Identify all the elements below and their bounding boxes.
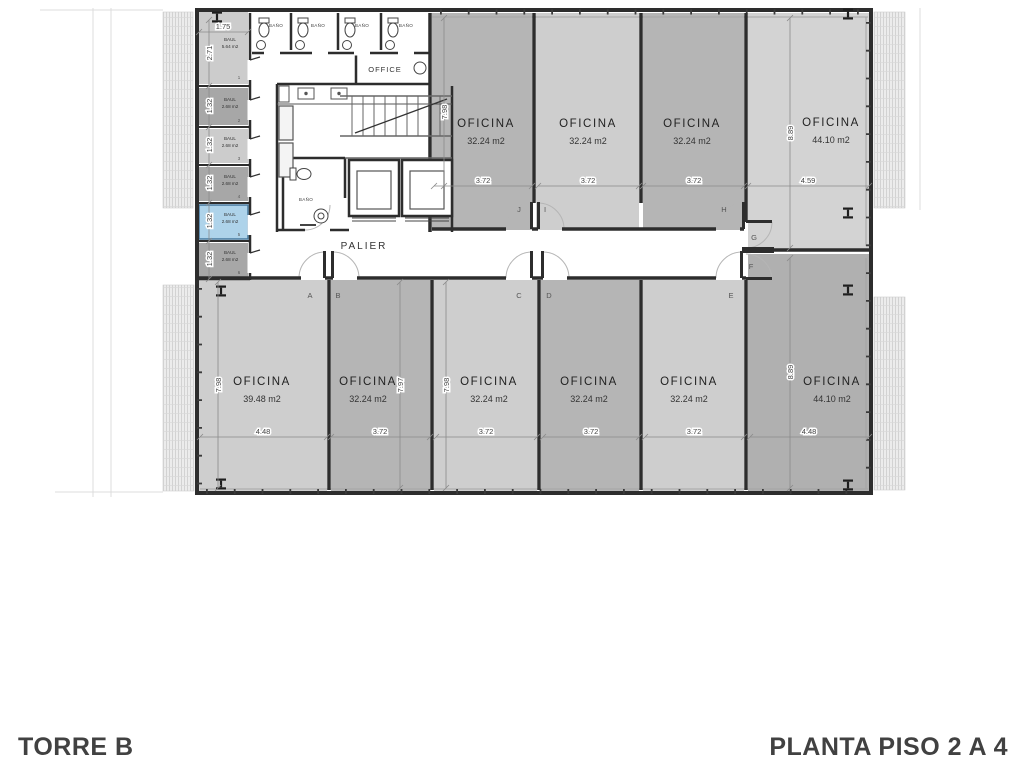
hatch-left-upper [163,12,193,208]
svg-text:44.10 m2: 44.10 m2 [813,394,851,404]
hatch-left-lower [163,285,194,491]
svg-text:OFICINA: OFICINA [457,118,515,130]
svg-text:2.68 m2: 2.68 m2 [222,181,239,186]
floor-plan-drawing: 3.72 3.72 3.72 4.59 4.48 3.72 3.72 3.72 … [0,0,1024,768]
office-room-sink [414,62,426,74]
svg-text:1.32: 1.32 [205,214,214,229]
svg-text:E: E [728,291,733,300]
svg-text:3.72: 3.72 [476,176,491,185]
svg-text:B: B [335,291,340,300]
svg-text:39.48 m2: 39.48 m2 [243,394,281,404]
svg-text:7.98: 7.98 [214,378,223,393]
wall-stub-gf [742,247,774,253]
svg-text:D: D [546,291,552,300]
svg-text:3.72: 3.72 [373,427,388,436]
svg-text:BAUL: BAUL [224,212,236,217]
svg-text:3.72: 3.72 [479,427,494,436]
svg-text:32.24 m2: 32.24 m2 [467,136,505,146]
elevators [349,160,452,221]
floor-plan-page: 3.72 3.72 3.72 4.59 4.48 3.72 3.72 3.72 … [0,0,1024,768]
svg-text:3.72: 3.72 [687,427,702,436]
svg-text:I: I [544,205,546,214]
svg-text:BAUL: BAUL [224,37,236,42]
svg-text:A: A [307,291,312,300]
svg-text:PALIER: PALIER [341,241,388,252]
svg-text:C: C [516,291,522,300]
svg-text:OFICINA: OFICINA [663,118,721,130]
svg-text:3.72: 3.72 [584,427,599,436]
svg-text:2.68 m2: 2.68 m2 [222,143,239,148]
svg-text:8.89: 8.89 [786,126,795,141]
svg-text:4.48: 4.48 [256,427,271,436]
plan-title: PLANTA PISO 2 A 4 [769,733,1008,762]
svg-text:BAÑO: BAÑO [269,22,283,28]
svg-text:32.24 m2: 32.24 m2 [673,136,711,146]
svg-text:32.24 m2: 32.24 m2 [570,394,608,404]
svg-text:2.68 m2: 2.68 m2 [222,219,239,224]
svg-text:F: F [749,262,754,271]
svg-text:44.10 m2: 44.10 m2 [812,135,850,145]
svg-text:7.97: 7.97 [396,378,405,393]
svg-text:BAUL: BAUL [224,136,236,141]
svg-text:1.32: 1.32 [205,252,214,267]
bathroom-strip-bg [252,13,430,53]
svg-text:1.75: 1.75 [216,22,231,31]
kitchenette [277,86,452,104]
svg-text:OFFICE: OFFICE [368,65,402,74]
svg-text:BAÑO: BAÑO [355,22,369,28]
svg-text:OFICINA: OFICINA [460,376,518,388]
hatch-right-upper [874,12,905,208]
svg-text:5.64 m2: 5.64 m2 [222,44,239,49]
svg-text:BAUL: BAUL [224,250,236,255]
svg-text:32.24 m2: 32.24 m2 [349,394,387,404]
svg-text:G: G [751,233,757,242]
tower-title: TORRE B [18,733,134,762]
svg-text:1.32: 1.32 [205,176,214,191]
svg-text:8.89: 8.89 [786,365,795,380]
svg-text:BAÑO: BAÑO [311,22,325,28]
svg-text:OFICINA: OFICINA [803,376,861,388]
svg-text:2.71: 2.71 [205,46,214,61]
svg-text:OFICINA: OFICINA [560,376,618,388]
stair-cabinets [279,106,293,177]
svg-text:3.72: 3.72 [687,176,702,185]
hatch-right-lower [874,297,905,490]
svg-text:OFICINA: OFICINA [660,376,718,388]
svg-text:OFICINA: OFICINA [233,376,291,388]
svg-text:OFICINA: OFICINA [559,118,617,130]
svg-text:32.24 m2: 32.24 m2 [670,394,708,404]
svg-text:OFICINA: OFICINA [802,117,860,129]
svg-text:OFICINA: OFICINA [339,376,397,388]
svg-text:BAÑO: BAÑO [299,196,313,202]
svg-text:BAÑO: BAÑO [399,22,413,28]
svg-text:7.98: 7.98 [440,105,449,120]
svg-text:BAUL: BAUL [224,97,236,102]
svg-text:4.59: 4.59 [801,176,816,185]
office-bottom-right [748,254,871,491]
svg-text:4.48: 4.48 [802,427,817,436]
svg-text:J: J [517,205,521,214]
svg-text:3.72: 3.72 [581,176,596,185]
svg-text:2.68 m2: 2.68 m2 [222,104,239,109]
svg-text:BAUL: BAUL [224,174,236,179]
svg-text:32.24 m2: 32.24 m2 [470,394,508,404]
svg-text:1.32: 1.32 [205,138,214,153]
office-top-right [748,13,871,250]
svg-text:7.98: 7.98 [442,378,451,393]
svg-text:32.24 m2: 32.24 m2 [569,136,607,146]
svg-text:H: H [721,205,726,214]
svg-text:2.68 m2: 2.68 m2 [222,257,239,262]
svg-text:1.32: 1.32 [205,99,214,114]
